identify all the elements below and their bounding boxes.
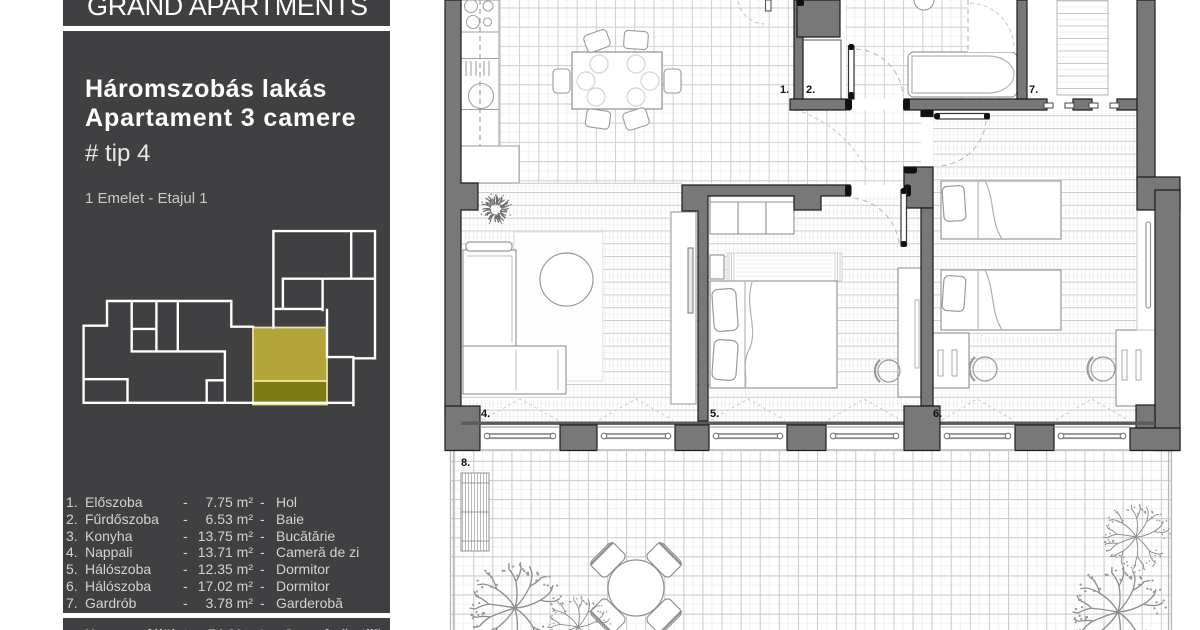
svg-text:4.: 4. bbox=[481, 408, 490, 420]
svg-text:8.: 8. bbox=[461, 457, 470, 469]
svg-text:2.: 2. bbox=[806, 84, 815, 96]
svg-text:5.: 5. bbox=[710, 408, 719, 420]
svg-text:6.: 6. bbox=[933, 408, 942, 420]
svg-text:7.: 7. bbox=[1029, 84, 1038, 96]
svg-text:1.: 1. bbox=[780, 84, 789, 96]
